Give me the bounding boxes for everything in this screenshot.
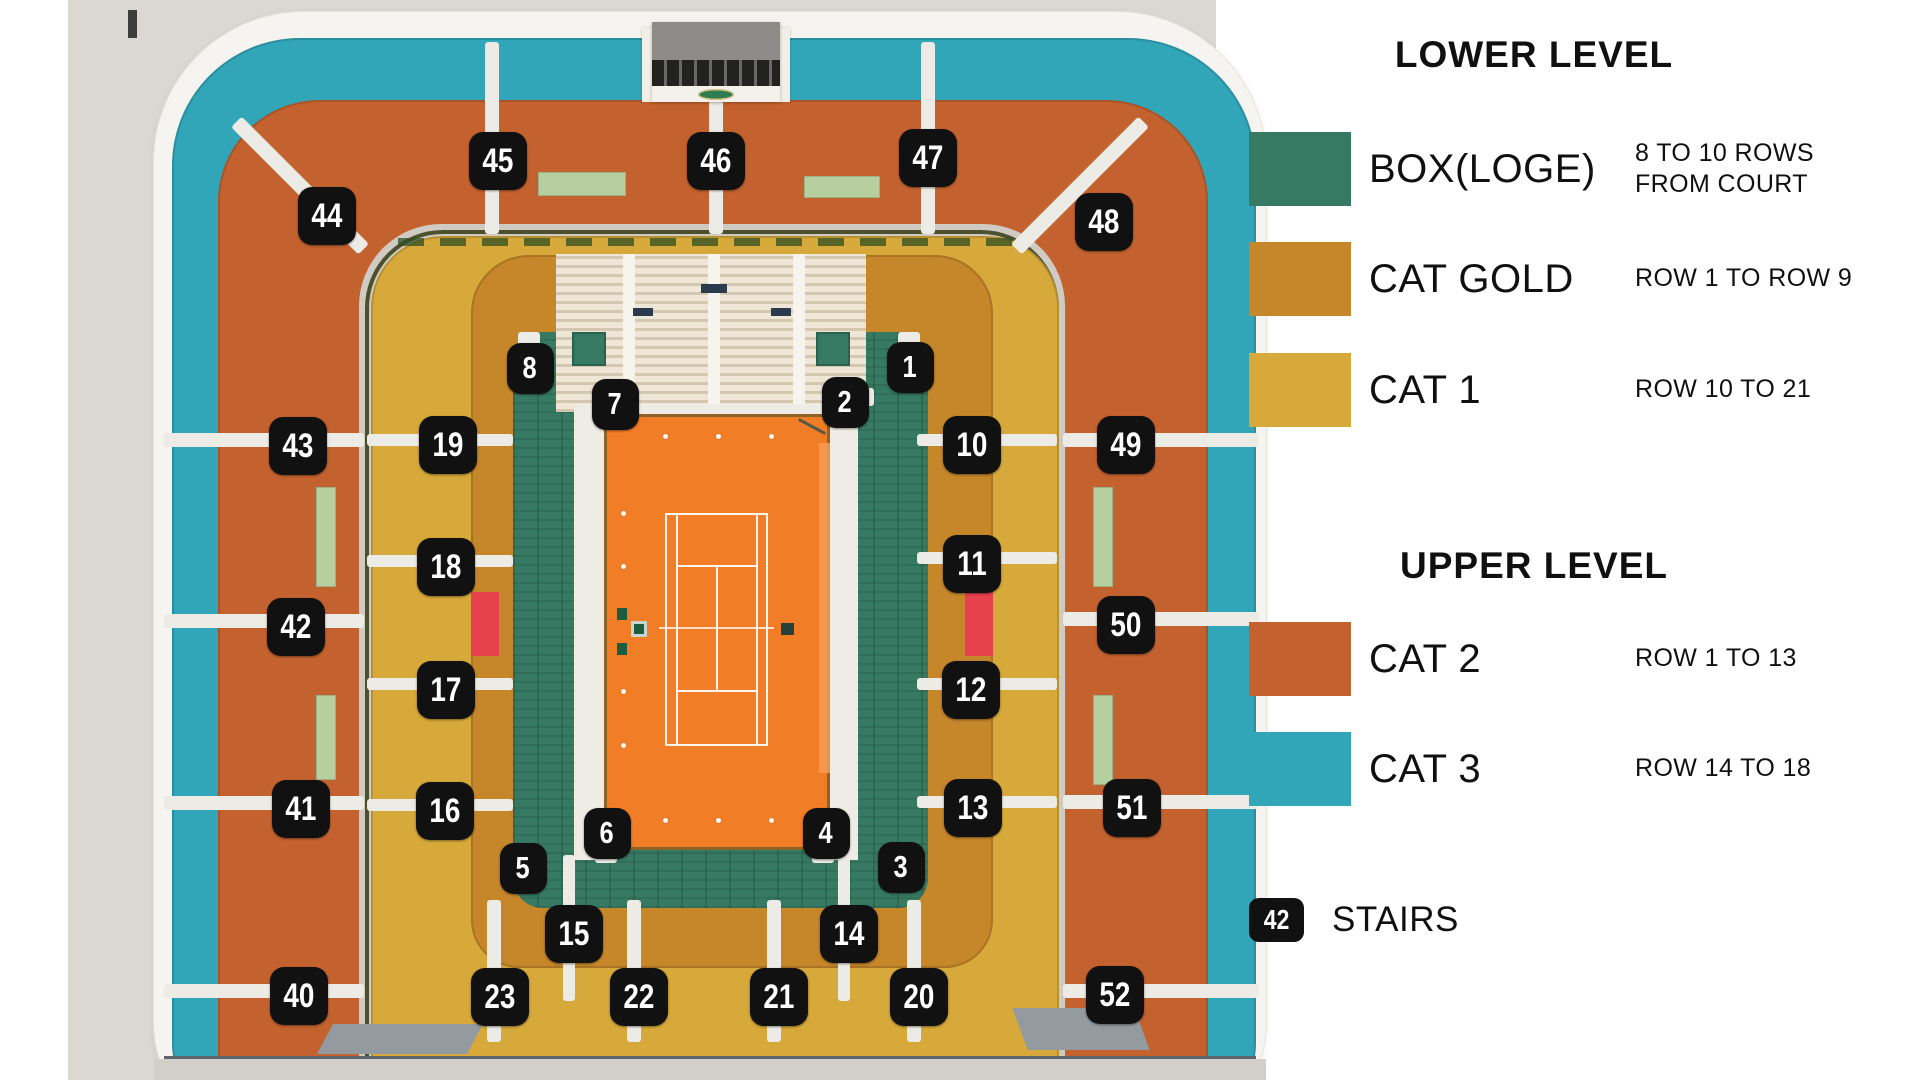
box-loge-desc: 8 TO 10 ROWS FROM COURT	[1635, 138, 1865, 200]
section-number: 49	[1110, 426, 1141, 465]
section-badge[interactable]: 48	[1075, 193, 1133, 251]
umpire-chair	[631, 621, 647, 637]
section-badge[interactable]: 18	[417, 538, 475, 596]
roland-garros-logo-icon	[698, 89, 734, 100]
section-number: 19	[432, 426, 463, 465]
tribune-aisle	[708, 254, 720, 412]
section-badge[interactable]: 17	[417, 661, 475, 719]
section-number: 1	[903, 349, 917, 385]
camera-platform	[538, 172, 626, 196]
section-badge[interactable]: 6	[584, 808, 631, 859]
tribune-aisle	[793, 254, 805, 412]
map-edge-artifact	[128, 10, 137, 38]
section-badge[interactable]: 16	[416, 782, 474, 840]
scoreboard-pillar	[642, 28, 652, 102]
section-number: 50	[1110, 606, 1141, 645]
court-singles-line	[756, 513, 758, 746]
section-badge[interactable]: 20	[890, 968, 948, 1026]
section-badge[interactable]: 45	[469, 132, 527, 190]
cat3-swatch	[1249, 732, 1351, 806]
stairs-badge-icon: 42	[1249, 898, 1304, 942]
cat-gold-swatch	[1249, 242, 1351, 316]
court-dot	[769, 434, 774, 439]
section-number: 3	[894, 849, 908, 885]
cat1-desc: ROW 10 TO 21	[1635, 374, 1865, 405]
section-number: 20	[903, 978, 934, 1017]
aisle	[1063, 612, 1259, 626]
section-number: 15	[558, 915, 589, 954]
court-net-line	[659, 627, 774, 629]
cat1-top-row-dashes	[398, 238, 1028, 246]
section-number: 47	[912, 139, 943, 178]
section-number: 22	[623, 978, 654, 1017]
cat1-swatch	[1249, 353, 1351, 427]
cat2-desc: ROW 1 TO 13	[1635, 643, 1865, 674]
section-number: 42	[280, 608, 311, 647]
camera-position	[781, 623, 794, 635]
section-badge[interactable]: 7	[592, 379, 639, 430]
section-badge[interactable]: 13	[944, 779, 1002, 837]
section-badge[interactable]: 1	[887, 342, 934, 393]
section-number: 44	[311, 197, 342, 236]
scoreboard-slats	[652, 60, 780, 86]
stairs-badge-number: 42	[1264, 904, 1290, 936]
section-badge[interactable]: 8	[507, 343, 554, 394]
court-dot	[621, 743, 626, 748]
camera-platform	[1093, 695, 1113, 785]
section-badge[interactable]: 40	[270, 967, 328, 1025]
legend-row-cat1: CAT 1 ROW 10 TO 21	[1249, 353, 1481, 427]
box-loge-swatch	[1249, 132, 1351, 206]
court-dot	[621, 689, 626, 694]
section-badge[interactable]: 44	[298, 187, 356, 245]
ground-strip	[154, 1059, 1266, 1080]
section-number: 17	[430, 671, 461, 710]
stairs-label: STAIRS	[1332, 900, 1459, 940]
section-badge[interactable]: 11	[943, 535, 1001, 593]
section-badge[interactable]: 21	[750, 968, 808, 1026]
aisle	[1063, 795, 1259, 809]
scoreboard-base	[652, 86, 780, 102]
section-number: 14	[833, 915, 864, 954]
section-badge[interactable]: 41	[272, 780, 330, 838]
player-bench	[617, 643, 627, 655]
section-number: 2	[838, 384, 852, 420]
section-badge[interactable]: 23	[471, 968, 529, 1026]
section-number: 10	[956, 426, 987, 465]
aisle	[164, 614, 364, 628]
cat3-desc: ROW 14 TO 18	[1635, 753, 1865, 784]
section-number: 6	[600, 815, 614, 851]
section-badge[interactable]: 46	[687, 132, 745, 190]
camera-platform	[1093, 487, 1113, 587]
court-walkway-right	[826, 408, 858, 860]
court-dot	[621, 511, 626, 516]
section-badge[interactable]: 47	[899, 129, 957, 187]
section-number: 7	[608, 386, 622, 422]
court-dot	[663, 434, 668, 439]
tribune-green-box	[816, 332, 850, 366]
cat2-swatch	[1249, 622, 1351, 696]
section-badge[interactable]: 50	[1097, 596, 1155, 654]
section-badge[interactable]: 14	[820, 905, 878, 963]
camera-platform	[804, 176, 880, 198]
section-badge[interactable]: 19	[419, 416, 477, 474]
tribune-entrance	[633, 308, 653, 316]
tribune-entrance	[701, 284, 727, 293]
player-bench	[617, 608, 627, 620]
court-dot	[769, 818, 774, 823]
cat-gold-label: CAT GOLD	[1369, 257, 1574, 302]
legend-row-cat3: CAT 3 ROW 14 TO 18	[1249, 732, 1481, 806]
section-badge[interactable]: 52	[1086, 966, 1144, 1024]
camera-platform	[316, 695, 336, 780]
section-number: 48	[1088, 203, 1119, 242]
court-dot	[663, 818, 668, 823]
scoreboard	[652, 22, 780, 102]
net-winder-mark	[798, 418, 826, 435]
desc-line: 8 TO 10 ROWS	[1635, 138, 1865, 169]
section-number: 16	[429, 792, 460, 831]
scoreboard-screen	[652, 22, 780, 60]
lower-level-heading: LOWER LEVEL	[1364, 34, 1704, 76]
section-badge[interactable]: 12	[942, 661, 1000, 719]
section-badge[interactable]: 51	[1103, 779, 1161, 837]
scoreboard-pillar	[780, 28, 790, 102]
camera-platform	[316, 487, 336, 587]
upper-level-heading: UPPER LEVEL	[1364, 545, 1704, 587]
section-number: 5	[516, 850, 530, 886]
tennis-court[interactable]	[604, 414, 830, 850]
section-badge[interactable]: 42	[267, 598, 325, 656]
section-number: 46	[700, 142, 731, 181]
legend-row-cat2: CAT 2 ROW 1 TO 13	[1249, 622, 1481, 696]
section-badge[interactable]: 3	[878, 842, 925, 893]
aisle	[164, 984, 364, 998]
section-number: 51	[1116, 789, 1147, 828]
desc-line: FROM COURT	[1635, 169, 1865, 200]
aisle	[1063, 433, 1259, 447]
section-number: 12	[955, 671, 986, 710]
section-number: 11	[957, 545, 986, 584]
section-badge[interactable]: 22	[610, 968, 668, 1026]
section-badge[interactable]: 2	[822, 377, 869, 428]
special-section-left	[471, 592, 499, 656]
legend-row-cat-gold: CAT GOLD ROW 1 TO ROW 9	[1249, 242, 1574, 316]
section-badge[interactable]: 49	[1097, 416, 1155, 474]
court-dot	[716, 818, 721, 823]
section-number: 13	[957, 789, 988, 828]
cat2-label: CAT 2	[1369, 637, 1481, 682]
entrance-ramp-left	[317, 1024, 483, 1054]
section-badge[interactable]: 5	[500, 843, 547, 894]
section-badge[interactable]: 15	[545, 905, 603, 963]
section-number: 18	[430, 548, 461, 587]
court-singles-line	[676, 513, 678, 746]
aisle	[164, 433, 364, 447]
clay-texture-strip	[819, 443, 830, 773]
section-number: 21	[763, 978, 794, 1017]
cat3-label: CAT 3	[1369, 747, 1481, 792]
section-number: 52	[1099, 976, 1130, 1015]
aisle	[164, 796, 364, 810]
section-number: 45	[482, 142, 513, 181]
section-badge[interactable]: 4	[803, 808, 850, 859]
section-number: 40	[283, 977, 314, 1016]
tribune-green-box	[572, 332, 606, 366]
cat1-label: CAT 1	[1369, 368, 1481, 413]
section-number: 43	[282, 427, 313, 466]
section-number: 23	[484, 978, 515, 1017]
stadium-seating-chart-page: 4546474448872143191049181142501712411613…	[0, 0, 1920, 1080]
box-loge-label: BOX(LOGE)	[1369, 147, 1596, 192]
court-dot	[716, 434, 721, 439]
section-number: 4	[819, 815, 833, 851]
court-walkway-left	[574, 408, 604, 860]
legend-row-stairs: 42 STAIRS	[1249, 898, 1459, 942]
section-number: 8	[523, 350, 537, 386]
legend-row-box: BOX(LOGE) 8 TO 10 ROWS FROM COURT	[1249, 132, 1596, 206]
section-badge[interactable]: 10	[943, 416, 1001, 474]
stadium-map[interactable]: 4546474448872143191049181142501712411613…	[68, 0, 1216, 1080]
section-badge[interactable]: 43	[269, 417, 327, 475]
tribune-entrance	[771, 308, 791, 316]
cat-gold-desc: ROW 1 TO ROW 9	[1635, 263, 1865, 294]
special-section-right	[965, 592, 993, 656]
court-dot	[621, 564, 626, 569]
section-number: 41	[285, 790, 316, 829]
